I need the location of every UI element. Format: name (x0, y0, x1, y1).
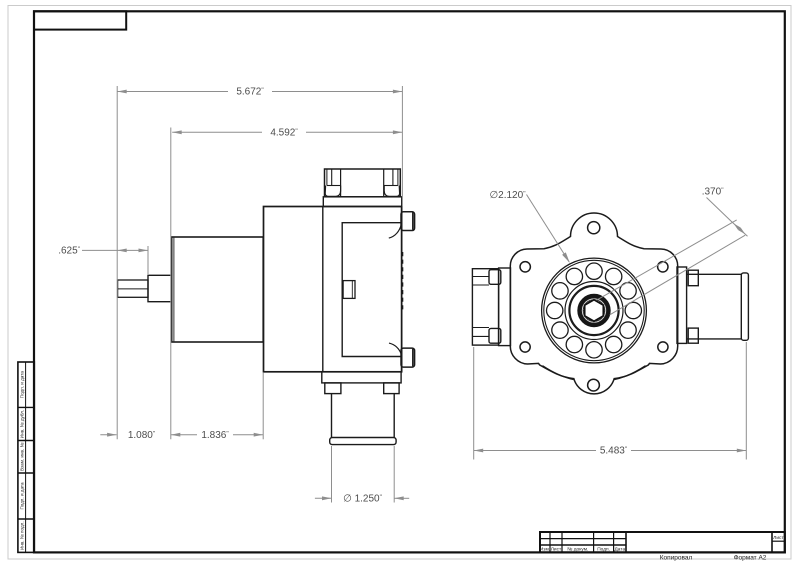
svg-text:Копировал: Копировал (660, 554, 693, 561)
svg-text:Лист: Лист (773, 535, 784, 541)
svg-text:∅2.120": ∅2.120" (489, 190, 526, 201)
svg-text:Дата: Дата (614, 546, 625, 552)
svg-text:Лист: Лист (551, 546, 562, 552)
svg-text:Подп. и дата: Подп. и дата (19, 482, 24, 510)
svg-text:1.080": 1.080" (128, 430, 156, 441)
svg-text:5.483": 5.483" (600, 446, 628, 457)
svg-text:Подп. и дата: Подп. и дата (19, 371, 24, 399)
svg-text:Взам. инв. №: Взам. инв. № (19, 443, 24, 472)
svg-text:Подп.: Подп. (597, 546, 610, 552)
svg-text:Формат А2: Формат А2 (734, 554, 767, 561)
svg-text:∅ 1.250": ∅ 1.250" (343, 493, 383, 504)
svg-text:1.836": 1.836" (201, 430, 229, 441)
svg-text:.625": .625" (58, 246, 80, 257)
svg-text:Изм.: Изм. (540, 546, 550, 552)
svg-text:4.592": 4.592" (270, 127, 298, 138)
svg-text:№ докум.: № докум. (567, 546, 588, 552)
svg-text:Инв. № дубл.: Инв. № дубл. (19, 410, 24, 438)
svg-text:Инв. № подл.: Инв. № подл. (19, 521, 24, 550)
svg-text:.370": .370" (702, 187, 724, 198)
svg-text:5.672": 5.672" (236, 87, 264, 98)
